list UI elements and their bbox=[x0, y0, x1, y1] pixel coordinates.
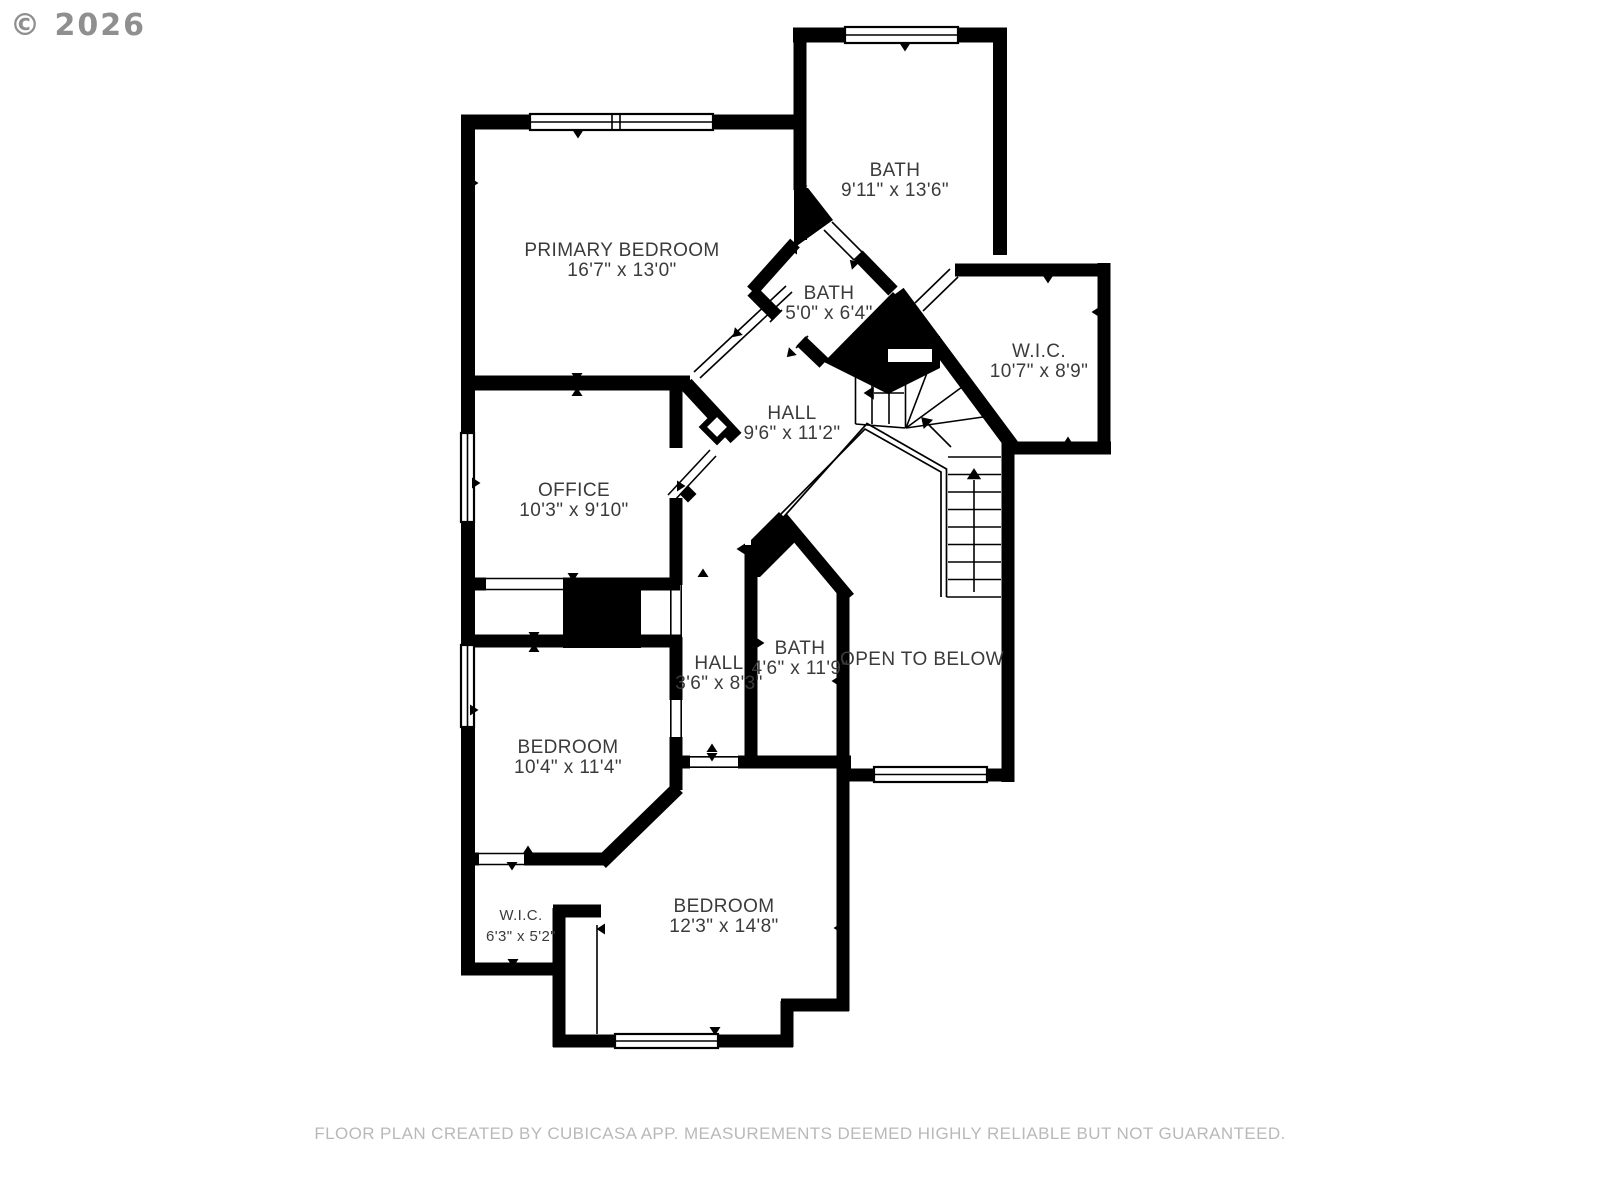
room-dims-hall-upper: 9'6" x 11'2" bbox=[743, 423, 840, 444]
room-label-bath-top: BATH bbox=[870, 160, 921, 181]
room-dims-bath-middle: 5'0" x 6'4" bbox=[785, 303, 872, 324]
room-dims-office: 10'3" x 9'10" bbox=[519, 500, 628, 521]
room-dims-wic-right: 10'7" x 8'9" bbox=[990, 361, 1088, 382]
footer-disclaimer: FLOOR PLAN CREATED BY CUBICASA APP. MEAS… bbox=[0, 1124, 1600, 1144]
room-label-primary-bedroom: PRIMARY BEDROOM bbox=[524, 240, 719, 261]
window-bath-top bbox=[845, 27, 958, 43]
room-label-open-to-below: OPEN TO BELOW bbox=[840, 649, 1004, 670]
room-label-office: OFFICE bbox=[538, 480, 610, 501]
room-dims-bath-lower: 4'6" x 11'9" bbox=[751, 658, 848, 679]
floor-plan-page: © 2026 bbox=[0, 0, 1600, 1200]
window-open-to-below bbox=[874, 767, 987, 782]
room-label-bath-middle: BATH bbox=[804, 283, 855, 304]
stairwell-railing bbox=[778, 424, 947, 598]
room-label-bath-lower: BATH bbox=[775, 638, 826, 659]
room-dims-wic-left: 6'3" x 5'2" bbox=[486, 928, 556, 945]
stair-direction-arrows bbox=[864, 386, 982, 592]
window-office bbox=[461, 433, 474, 522]
room-labels: BATH9'11" x 13'6"PRIMARY BEDROOM16'7" x … bbox=[486, 160, 1088, 945]
room-label-wic-left: W.I.C. bbox=[499, 907, 542, 924]
room-label-wic-right: W.I.C. bbox=[1012, 341, 1066, 362]
room-dims-hall-lower: 3'6" x 8'3" bbox=[675, 673, 762, 694]
room-dims-bedroom-bottom: 12'3" x 14'8" bbox=[669, 916, 778, 937]
room-dims-bath-top: 9'11" x 13'6" bbox=[841, 180, 949, 201]
window-bedroom-left bbox=[461, 645, 474, 727]
room-dims-primary-bedroom: 16'7" x 13'0" bbox=[567, 260, 676, 281]
window-bedroom-bottom bbox=[615, 1034, 718, 1048]
room-label-bedroom-left: BEDROOM bbox=[518, 737, 619, 758]
room-dims-bedroom-left: 10'4" x 11'4" bbox=[514, 757, 622, 778]
room-label-hall-lower: HALL bbox=[694, 653, 743, 674]
room-label-hall-upper: HALL bbox=[767, 403, 816, 424]
room-label-bedroom-bottom: BEDROOM bbox=[674, 896, 775, 917]
window-primary-bedroom bbox=[530, 114, 713, 130]
floor-plan-drawing: BATH9'11" x 13'6"PRIMARY BEDROOM16'7" x … bbox=[0, 0, 1600, 1200]
